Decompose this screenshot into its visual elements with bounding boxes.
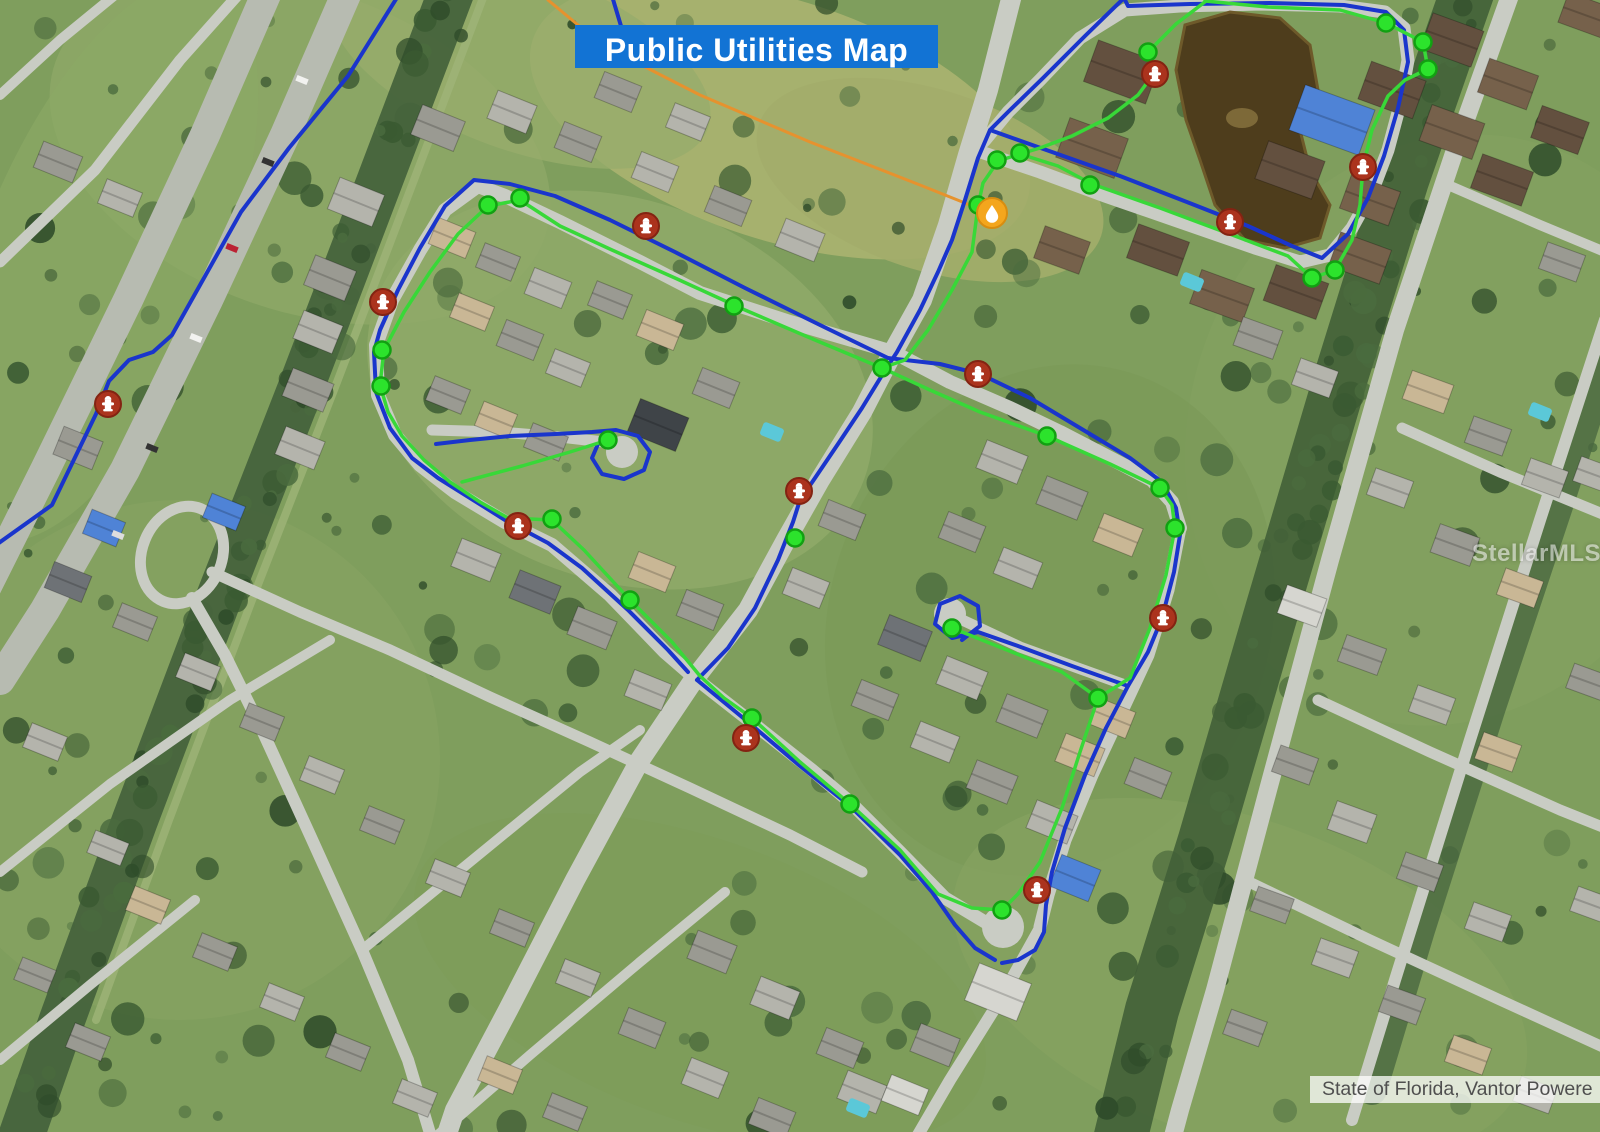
water-node-marker[interactable]: [1420, 61, 1437, 78]
lift-station-layer[interactable]: [977, 198, 1007, 228]
water-node-marker[interactable]: [512, 190, 529, 207]
water-node-marker[interactable]: [994, 902, 1011, 919]
map-title: Public Utilities Map: [605, 25, 908, 68]
water-node-marker[interactable]: [374, 342, 391, 359]
map-title-banner: Public Utilities Map: [575, 25, 938, 68]
fire-hydrant-marker[interactable]: [1142, 61, 1168, 87]
fire-hydrant-marker[interactable]: [965, 361, 991, 387]
fire-hydrant-marker[interactable]: [1350, 154, 1376, 180]
water-node-marker[interactable]: [944, 620, 961, 637]
water-node-marker[interactable]: [1039, 428, 1056, 445]
water-node-marker[interactable]: [373, 378, 390, 395]
fire-hydrant-marker[interactable]: [370, 289, 396, 315]
water-node-marker[interactable]: [1140, 44, 1157, 61]
water-node-marker[interactable]: [600, 432, 617, 449]
water-node-marker[interactable]: [1415, 34, 1432, 51]
utilities-map-screenshot: Public Utilities Map StellarMLS State of…: [0, 0, 1600, 1132]
fire-hydrant-marker[interactable]: [1217, 209, 1243, 235]
water-node-marker[interactable]: [544, 511, 561, 528]
water-node-marker[interactable]: [874, 360, 891, 377]
water-node-marker[interactable]: [842, 796, 859, 813]
water-node-marker[interactable]: [1327, 262, 1344, 279]
attribution-bar: State of Florida, Vantor Powere: [1310, 1076, 1600, 1103]
water-node-marker[interactable]: [1152, 480, 1169, 497]
fire-hydrant-marker[interactable]: [1150, 605, 1176, 631]
utilities-map-canvas[interactable]: [0, 0, 1600, 1132]
lift-station-marker[interactable]: [977, 198, 1007, 228]
fire-hydrant-marker[interactable]: [505, 513, 531, 539]
water-node-marker[interactable]: [1304, 270, 1321, 287]
fire-hydrant-marker[interactable]: [633, 213, 659, 239]
attribution-text: State of Florida, Vantor Powere: [1310, 1076, 1593, 1103]
fire-hydrant-marker[interactable]: [1024, 877, 1050, 903]
water-node-marker[interactable]: [726, 298, 743, 315]
fire-hydrant-marker[interactable]: [733, 725, 759, 751]
water-node-marker[interactable]: [989, 152, 1006, 169]
water-node-marker[interactable]: [622, 592, 639, 609]
fire-hydrant-marker[interactable]: [95, 391, 121, 417]
water-node-marker[interactable]: [1090, 690, 1107, 707]
water-node-marker[interactable]: [480, 197, 497, 214]
water-node-marker[interactable]: [1082, 177, 1099, 194]
water-node-marker[interactable]: [1378, 15, 1395, 32]
water-node-marker[interactable]: [787, 530, 804, 547]
water-node-marker[interactable]: [1167, 520, 1184, 537]
water-node-marker[interactable]: [1012, 145, 1029, 162]
fire-hydrant-marker[interactable]: [786, 478, 812, 504]
water-node-marker[interactable]: [744, 710, 761, 727]
